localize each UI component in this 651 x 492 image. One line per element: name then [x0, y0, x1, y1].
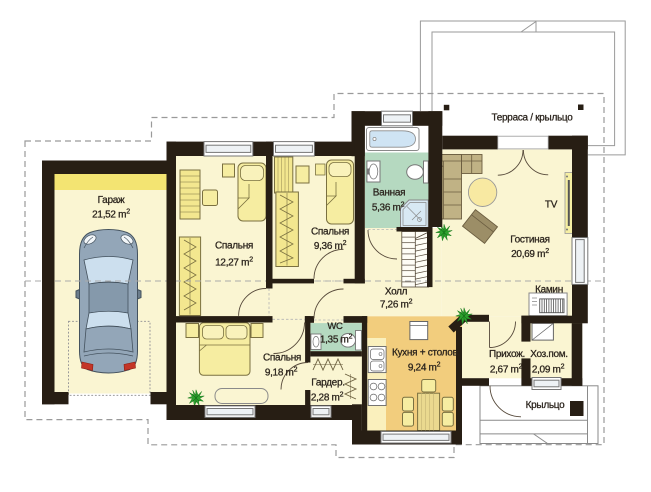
svg-text:Терраса / крыльцо: Терраса / крыльцо [492, 113, 574, 124]
svg-text:Прихож.: Прихож. [489, 349, 525, 360]
svg-text:1,35 m2: 1,35 m2 [320, 334, 353, 346]
svg-text:21,52 m2: 21,52 m2 [92, 209, 130, 221]
svg-text:2,28 m2: 2,28 m2 [311, 392, 344, 404]
svg-text:Ванная: Ванная [373, 188, 405, 199]
svg-text:Гараж: Гараж [98, 195, 125, 206]
svg-text:9,24 m2: 9,24 m2 [408, 362, 441, 374]
svg-text:TV: TV [545, 200, 558, 211]
svg-text:Кухня + столов.: Кухня + столов. [392, 348, 460, 359]
svg-text:2,09 m2: 2,09 m2 [532, 364, 565, 376]
svg-text:12,27 m2: 12,27 m2 [215, 257, 253, 269]
svg-text:2,67 m2: 2,67 m2 [490, 364, 523, 376]
svg-text:7,26 m2: 7,26 m2 [380, 299, 413, 311]
svg-text:9,36 m2: 9,36 m2 [314, 240, 347, 252]
svg-text:9,18 m2: 9,18 m2 [265, 367, 298, 379]
svg-text:Холл: Холл [385, 287, 408, 298]
svg-text:Спальня: Спальня [311, 227, 349, 238]
svg-text:Гардер.: Гардер. [311, 378, 344, 389]
svg-text:Гостиная: Гостиная [510, 235, 550, 246]
svg-text:Камин: Камин [535, 285, 563, 296]
svg-text:5,36 m2: 5,36 m2 [372, 202, 405, 214]
svg-text:20,69 m2: 20,69 m2 [511, 248, 549, 260]
svg-text:Спальня: Спальня [215, 241, 253, 252]
svg-text:Хоз.пом.: Хоз.пом. [530, 349, 568, 360]
svg-text:WC: WC [327, 321, 343, 332]
svg-text:Крыльцо: Крыльцо [526, 400, 565, 411]
svg-text:Спальня: Спальня [263, 353, 301, 364]
